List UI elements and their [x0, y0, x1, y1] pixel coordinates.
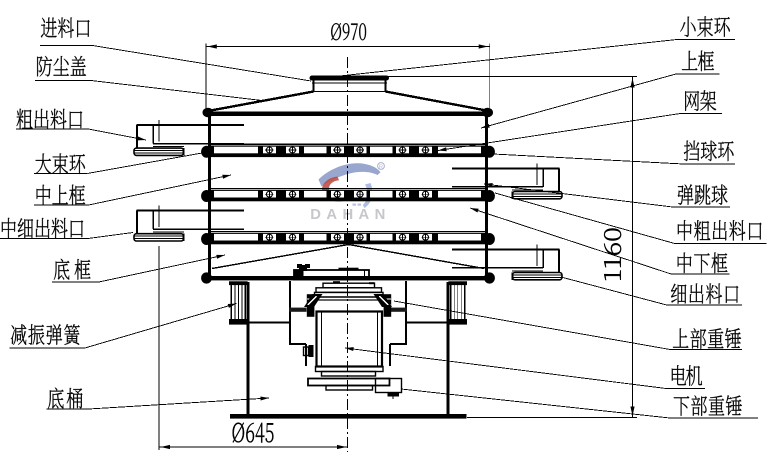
svg-text:DAHAN: DAHAN [310, 207, 390, 223]
svg-text:R: R [379, 165, 383, 171]
